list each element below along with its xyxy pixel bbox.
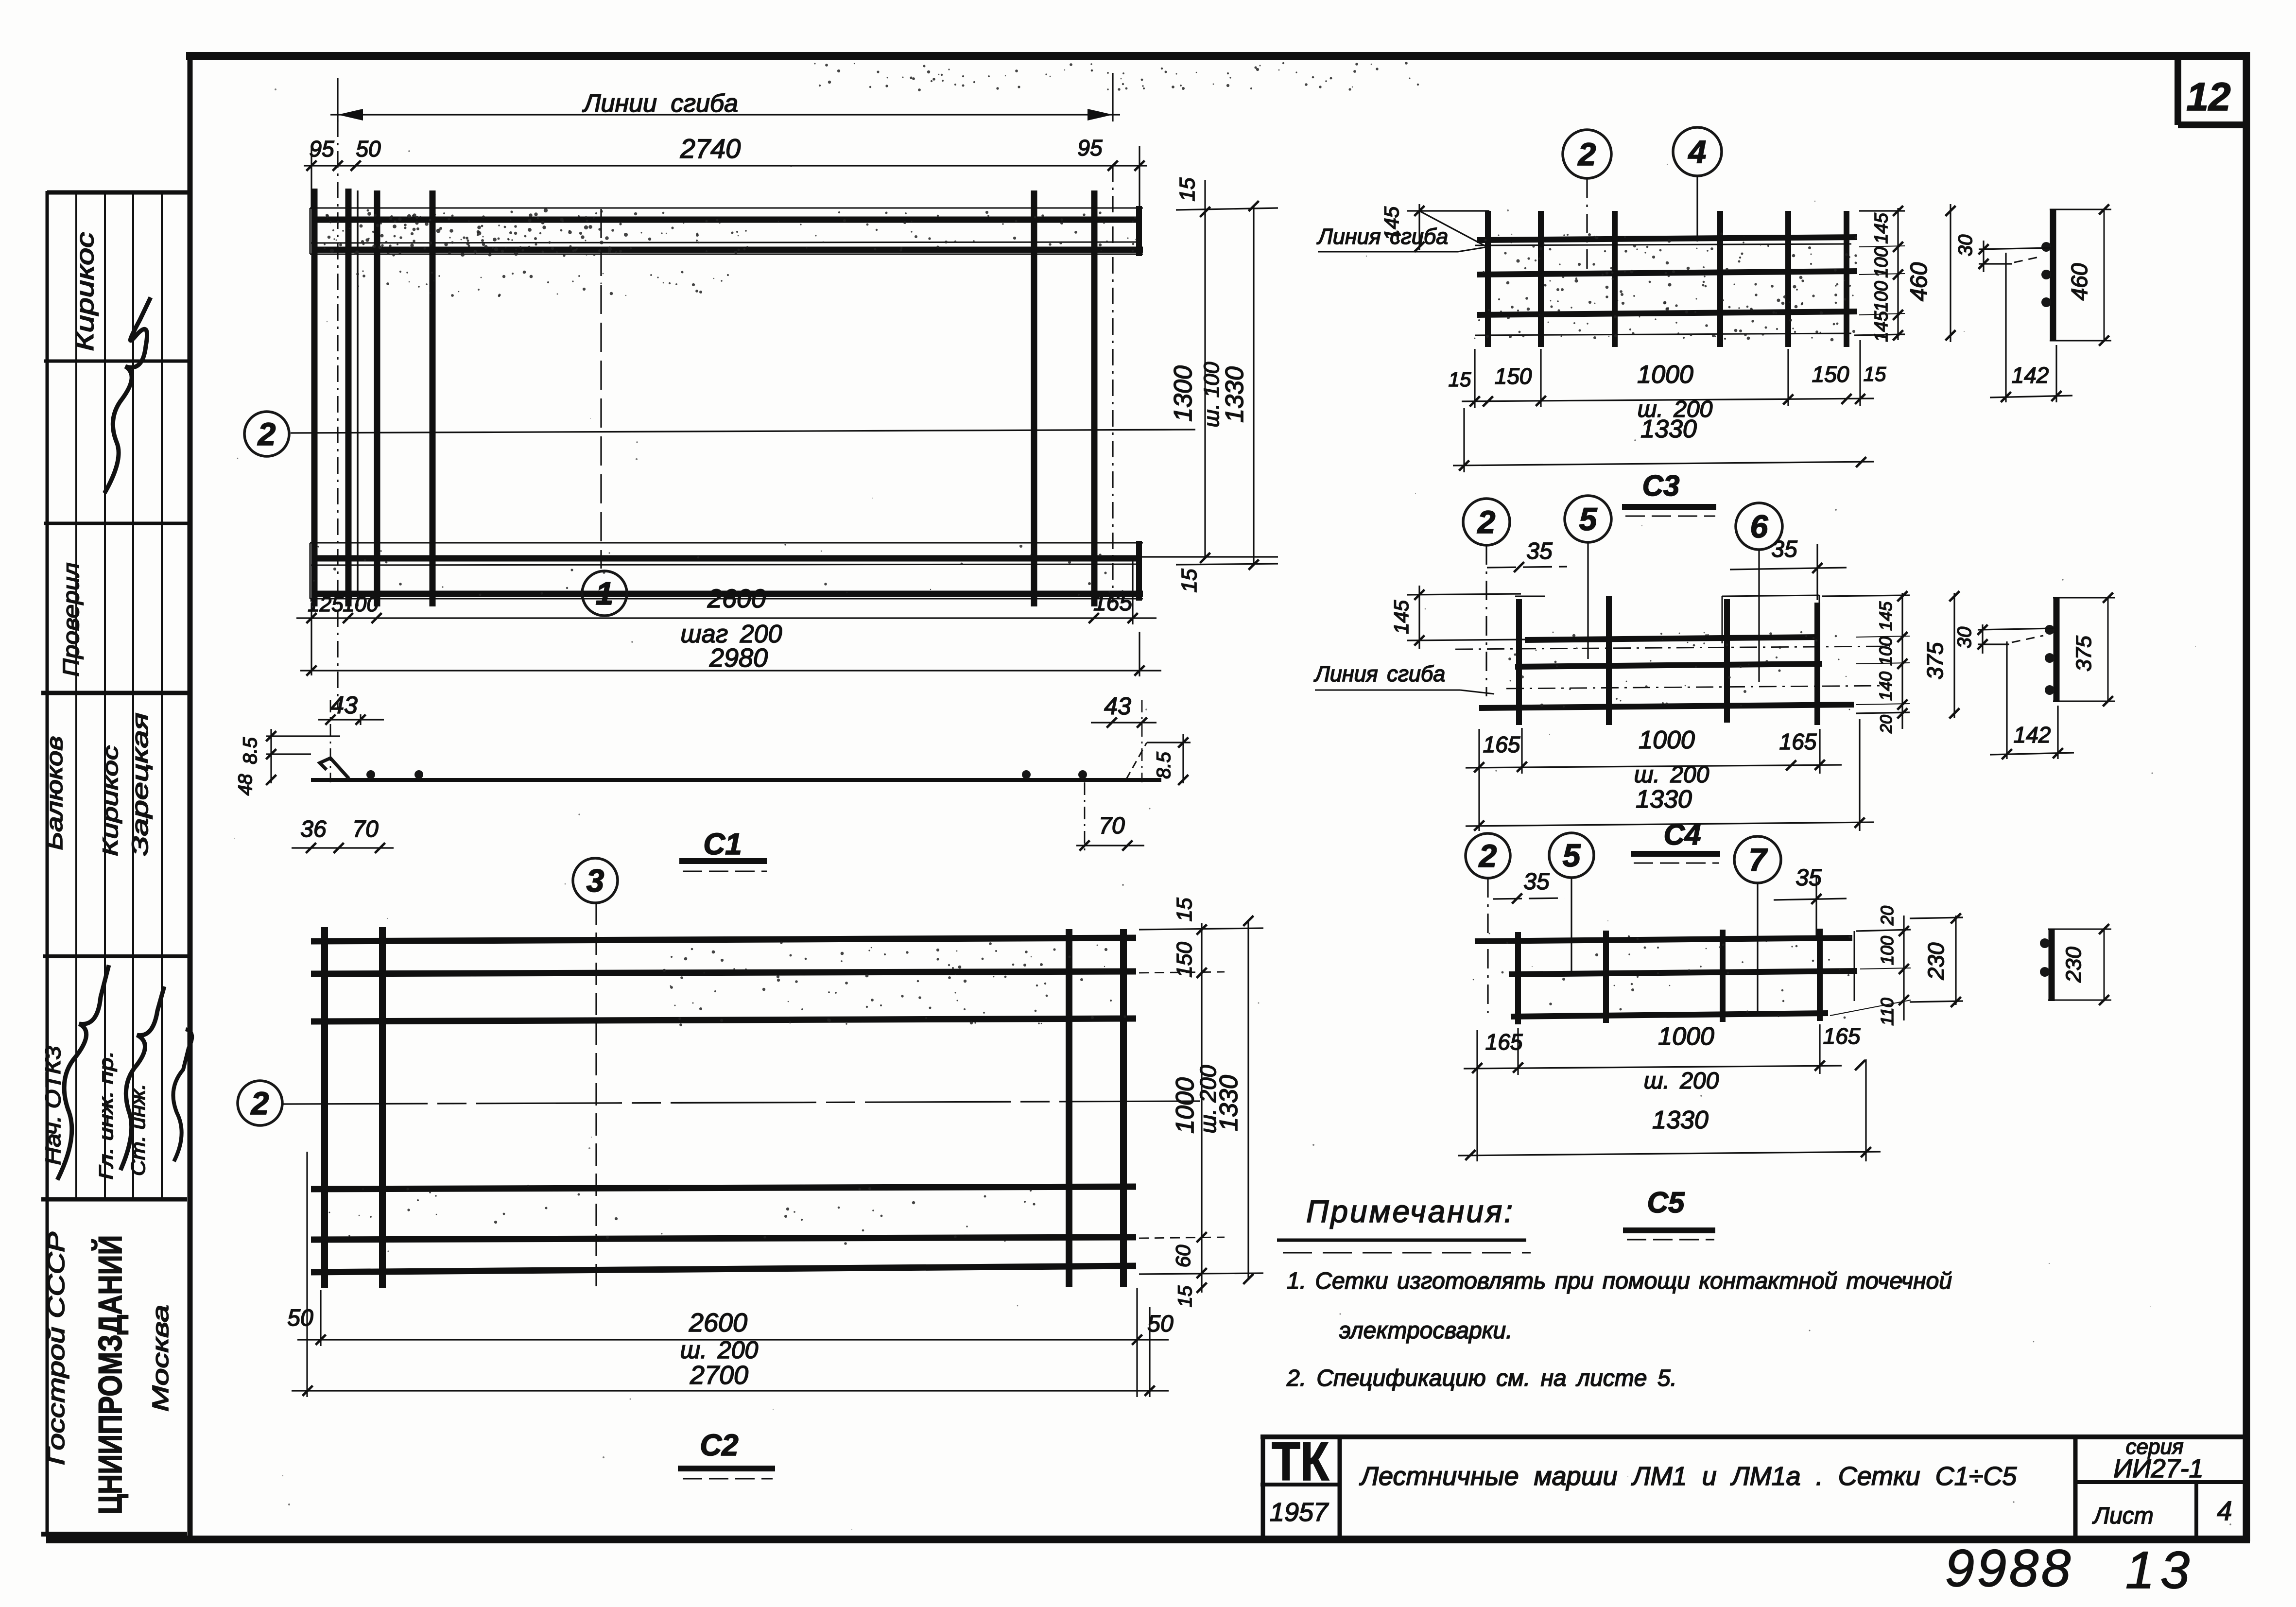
svg-text:145: 145 xyxy=(1876,601,1896,631)
svg-text:ш. 200: ш. 200 xyxy=(680,1336,759,1364)
svg-text:142: 142 xyxy=(2014,722,2051,747)
svg-text:35: 35 xyxy=(1795,865,1822,891)
svg-text:4: 4 xyxy=(1688,134,1707,170)
svg-text:Зарецкая: Зарецкая xyxy=(127,713,153,856)
svg-text:Ст. инж.: Ст. инж. xyxy=(128,1084,149,1176)
svg-text:2: 2 xyxy=(257,416,276,452)
svg-text:2740: 2740 xyxy=(680,133,741,164)
svg-text:8.5: 8.5 xyxy=(1153,751,1174,778)
svg-text:2700: 2700 xyxy=(690,1361,748,1390)
svg-text:145: 145 xyxy=(1871,311,1892,342)
svg-text:Кирикос: Кирикос xyxy=(99,745,122,856)
svg-text:30: 30 xyxy=(1954,627,1975,649)
svg-text:С3: С3 xyxy=(1642,469,1680,502)
svg-text:145: 145 xyxy=(1871,212,1892,243)
svg-text:15: 15 xyxy=(1173,898,1196,921)
svg-text:2: 2 xyxy=(1477,504,1496,540)
svg-text:43: 43 xyxy=(1104,692,1131,720)
svg-text:145: 145 xyxy=(1380,206,1403,241)
svg-text:2600: 2600 xyxy=(707,584,766,613)
svg-text:1000: 1000 xyxy=(1639,726,1695,754)
svg-text:С2: С2 xyxy=(700,1429,738,1462)
svg-text:2980: 2980 xyxy=(709,643,768,673)
svg-text:460: 460 xyxy=(1906,262,1932,301)
svg-text:Линия сгиба: Линия сгиба xyxy=(1313,661,1445,686)
svg-text:Проверил: Проверил xyxy=(58,563,84,677)
svg-text:20: 20 xyxy=(1877,906,1897,926)
svg-text:2600: 2600 xyxy=(689,1308,747,1337)
svg-text:ИИ27-1: ИИ27-1 xyxy=(2113,1454,2203,1483)
svg-text:125: 125 xyxy=(308,592,344,616)
svg-text:1957: 1957 xyxy=(1270,1498,1329,1527)
svg-text:электросварки.: электросварки. xyxy=(1339,1318,1512,1344)
svg-text:3: 3 xyxy=(587,863,604,899)
svg-text:1330: 1330 xyxy=(1636,785,1692,813)
svg-text:110: 110 xyxy=(1877,998,1897,1025)
svg-text:1330: 1330 xyxy=(1652,1106,1709,1134)
svg-text:Лист: Лист xyxy=(2092,1503,2154,1529)
svg-text:Примечания:: Примечания: xyxy=(1306,1194,1515,1229)
svg-text:95: 95 xyxy=(1077,135,1103,160)
svg-text:1330: 1330 xyxy=(1640,415,1697,443)
svg-text:8.5: 8.5 xyxy=(240,737,261,764)
svg-text:142: 142 xyxy=(2012,363,2049,388)
svg-text:70: 70 xyxy=(352,816,379,842)
svg-text:35: 35 xyxy=(1771,536,1797,562)
svg-text:100: 100 xyxy=(1871,247,1892,277)
svg-text:Москва: Москва xyxy=(148,1305,173,1412)
svg-text:60: 60 xyxy=(1172,1244,1194,1267)
svg-text:100: 100 xyxy=(1877,936,1897,965)
svg-text:С4: С4 xyxy=(1664,818,1701,851)
svg-text:100: 100 xyxy=(343,592,379,616)
svg-text:50: 50 xyxy=(1147,1311,1174,1337)
svg-text:2: 2 xyxy=(1577,136,1596,172)
svg-text:ЦНИИПРОМЗДАНИЙ: ЦНИИПРОМЗДАНИЙ xyxy=(91,1235,129,1515)
svg-text:95: 95 xyxy=(309,136,334,161)
svg-text:48: 48 xyxy=(235,774,256,795)
svg-text:1. Сетки изготовлять при по: 1. Сетки изготовлять при помощи контактн… xyxy=(1287,1268,1952,1294)
svg-text:15: 15 xyxy=(1175,177,1199,201)
svg-text:30: 30 xyxy=(1955,235,1976,257)
svg-text:ТК: ТК xyxy=(1272,1431,1329,1492)
svg-text:ш. 200: ш. 200 xyxy=(1634,762,1709,788)
svg-text:460: 460 xyxy=(2067,263,2092,300)
svg-text:375: 375 xyxy=(1922,642,1948,679)
svg-text:36: 36 xyxy=(300,816,327,842)
svg-text:50: 50 xyxy=(356,136,381,161)
svg-text:35: 35 xyxy=(1523,869,1550,895)
svg-text:165: 165 xyxy=(1093,590,1132,616)
svg-text:Лестничные марши ЛМ1 и ЛМ1а: Лестничные марши ЛМ1 и ЛМ1а . Сетки С1÷С… xyxy=(1359,1462,2017,1491)
svg-text:Госстрой СССР: Госстрой СССР xyxy=(44,1232,69,1465)
svg-text:5: 5 xyxy=(1579,501,1598,537)
svg-text:15: 15 xyxy=(1449,368,1471,391)
svg-text:Линии сгиба: Линии сгиба xyxy=(582,89,738,118)
svg-text:165: 165 xyxy=(1779,729,1817,754)
svg-text:50: 50 xyxy=(287,1305,313,1331)
svg-text:С5: С5 xyxy=(1647,1186,1685,1219)
svg-text:1330: 1330 xyxy=(1215,1075,1243,1131)
svg-text:165: 165 xyxy=(1485,1029,1523,1054)
svg-text:150: 150 xyxy=(1495,363,1532,389)
svg-text:7: 7 xyxy=(1749,842,1768,878)
svg-text:ш. 200: ш. 200 xyxy=(1644,1068,1719,1094)
svg-text:2: 2 xyxy=(1478,838,1497,874)
svg-text:140: 140 xyxy=(1876,672,1896,701)
svg-text:35: 35 xyxy=(1526,538,1553,564)
svg-text:70: 70 xyxy=(1099,813,1125,839)
svg-text:15: 15 xyxy=(1177,569,1201,592)
svg-text:1000: 1000 xyxy=(1637,361,1693,389)
svg-text:1330: 1330 xyxy=(1221,366,1249,423)
svg-text:12: 12 xyxy=(2186,75,2230,119)
svg-text:Кирикос: Кирикос xyxy=(71,232,99,351)
svg-text:230: 230 xyxy=(2062,947,2086,983)
svg-text:100: 100 xyxy=(1871,281,1892,311)
svg-text:15: 15 xyxy=(1174,1285,1196,1307)
svg-text:1300: 1300 xyxy=(1169,365,1197,422)
svg-text:6: 6 xyxy=(1750,508,1769,544)
svg-text:15: 15 xyxy=(1864,363,1886,385)
svg-text:20: 20 xyxy=(1877,715,1896,734)
svg-text:ш. 100: ш. 100 xyxy=(1200,362,1224,427)
svg-text:5: 5 xyxy=(1563,837,1581,873)
svg-text:1: 1 xyxy=(596,575,614,611)
svg-text:375: 375 xyxy=(2072,636,2096,672)
svg-text:С1: С1 xyxy=(703,828,742,861)
svg-text:165: 165 xyxy=(1483,732,1520,757)
svg-text:230: 230 xyxy=(1923,942,1949,980)
svg-text:165: 165 xyxy=(1823,1023,1861,1049)
svg-text:Балюков: Балюков xyxy=(42,736,67,850)
svg-text:13: 13 xyxy=(2125,1540,2195,1599)
svg-text:2. Спецификацию см. на лист: 2. Спецификацию см. на листе 5. xyxy=(1286,1365,1677,1391)
svg-text:Гл. инж. пр.: Гл. инж. пр. xyxy=(96,1051,117,1180)
svg-text:1000: 1000 xyxy=(1658,1022,1714,1051)
svg-text:100: 100 xyxy=(1876,637,1896,666)
svg-text:9988: 9988 xyxy=(1945,1538,2073,1597)
svg-text:4: 4 xyxy=(2217,1495,2232,1526)
svg-text:Нач. ОТК3: Нач. ОТК3 xyxy=(41,1046,65,1165)
svg-text:150: 150 xyxy=(1812,362,1849,387)
svg-text:2: 2 xyxy=(250,1085,269,1121)
svg-text:145: 145 xyxy=(1390,600,1413,634)
